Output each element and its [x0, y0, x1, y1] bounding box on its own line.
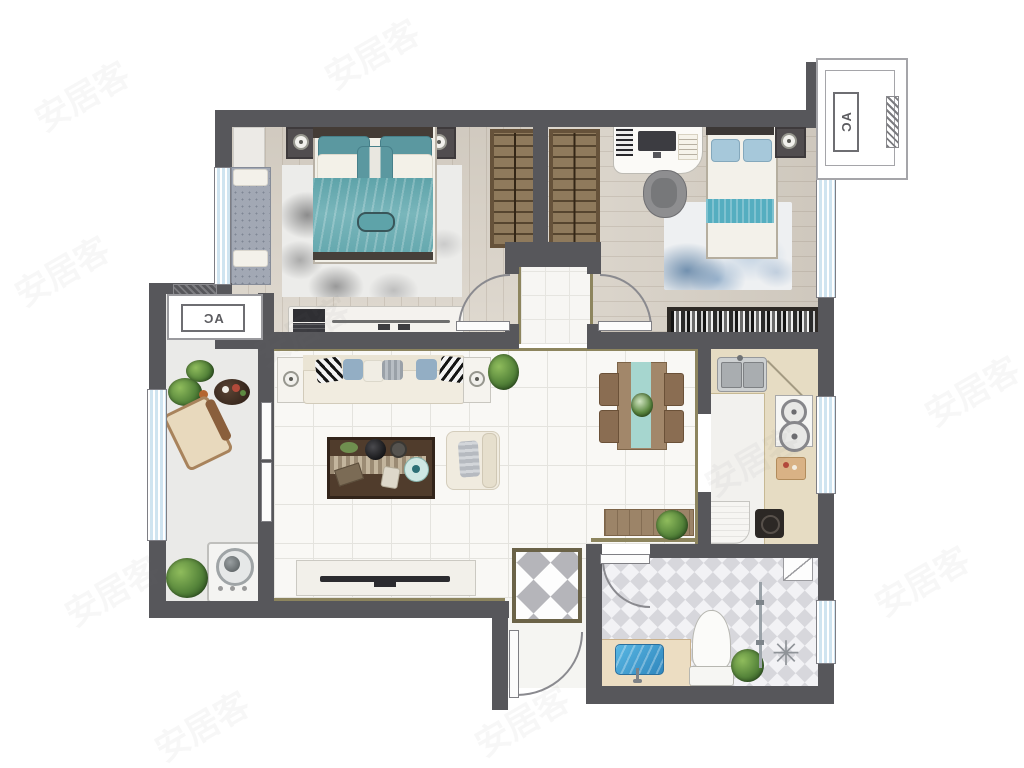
- cutting-board-dot: [783, 462, 789, 468]
- washer-knob: [230, 586, 235, 591]
- wall-bottom-main: [149, 601, 509, 618]
- watermark: 安居客: [25, 48, 138, 141]
- door-leaf-entry: [509, 630, 519, 698]
- dining-chair: [599, 410, 619, 443]
- watermark: 安居客: [315, 6, 428, 99]
- dresser-feet: [398, 324, 410, 330]
- ac-label-right-text: AC: [839, 112, 854, 133]
- shower-head-icon: ✳: [766, 634, 806, 674]
- window-master-bay: [214, 167, 231, 285]
- ac-label-right: AC: [833, 92, 859, 152]
- dresser-bar: [332, 320, 450, 323]
- wall-kitchen-left-a: [698, 349, 711, 414]
- shower-glass-partition: [759, 582, 762, 668]
- tv-stand: [374, 582, 396, 587]
- desk-papers: [678, 134, 698, 160]
- sofa-pillow-gray: [382, 360, 403, 380]
- single-bed-pillow-right: [743, 139, 772, 162]
- glass-hinge: [756, 640, 764, 645]
- wall-bath-left: [586, 544, 602, 704]
- table-lamp-icon: [283, 371, 299, 387]
- door-leaf-bathroom: [600, 554, 650, 564]
- bed-duvet-clasp: [357, 212, 395, 232]
- floor-plan: ✳: [0, 0, 1024, 768]
- sofa-pillow-blue-left: [343, 359, 363, 380]
- vanity-sink: [615, 644, 664, 675]
- wall-closet-divider: [533, 127, 548, 242]
- balcony-plant: [186, 360, 214, 382]
- sink-basin-right: [743, 362, 764, 388]
- door-leaf-master: [456, 321, 510, 331]
- laptop-icon: [293, 309, 325, 322]
- wall-top: [215, 110, 820, 127]
- wall-kitchen-left-b: [698, 492, 711, 545]
- greens-dish: [340, 442, 358, 453]
- entry-door-mat: [512, 548, 582, 623]
- dresser-feet: [378, 324, 390, 330]
- window-kitchen: [816, 396, 836, 494]
- sliding-door-leaf: [261, 402, 272, 460]
- wall-bedroom2-bottom: [601, 332, 834, 349]
- hallway-floor: [518, 267, 593, 344]
- burner-large: [779, 421, 810, 452]
- washer-knob: [242, 586, 247, 591]
- wall-entry-bay-left: [492, 618, 508, 710]
- wall-hall-right-a: [587, 242, 601, 274]
- bench-pillow-bottom: [233, 250, 268, 267]
- dining-centerpiece: [631, 393, 653, 417]
- appliance-ring: [761, 515, 780, 534]
- armchair-back: [482, 433, 497, 488]
- table-lamp-icon: [469, 371, 485, 387]
- ac-label-left-text: AC: [203, 311, 224, 326]
- single-bed-runner: [706, 199, 774, 223]
- monitor-stand: [653, 152, 661, 158]
- window-bedroom2: [816, 177, 836, 298]
- ac-label-left: AC: [181, 304, 245, 332]
- dining-border-segment: [591, 538, 698, 542]
- wall-right-b: [818, 296, 834, 396]
- dining-chair: [664, 410, 684, 443]
- ac-hatch-right: [886, 96, 899, 148]
- balcony-plant-bottom: [166, 558, 208, 598]
- bathroom-niche: [783, 556, 813, 581]
- spool: [380, 466, 400, 490]
- single-bed-pillow-left: [711, 139, 740, 162]
- washer-drum-inner: [224, 556, 240, 572]
- toilet-bowl: [692, 610, 731, 670]
- sofa-pillow-blue-right: [416, 359, 437, 380]
- toilet-tank: [689, 666, 734, 686]
- sofa-pillow-zebra-left: [314, 356, 343, 383]
- desk-stripe-mat: [616, 128, 633, 156]
- bed-foot-rail: [313, 252, 433, 260]
- sink-faucet-icon: [737, 355, 743, 361]
- sliding-door-leaf: [261, 462, 272, 522]
- sink-basin-left: [721, 362, 742, 388]
- vanity-faucet-base: [633, 679, 642, 683]
- watermark: 安居客: [145, 678, 258, 768]
- wall-balcony-left-a: [149, 283, 166, 389]
- wall-bath-bottom: [586, 686, 834, 704]
- desk-chair-seat: [651, 178, 677, 208]
- tea-bowl: [390, 441, 407, 458]
- window-balcony: [147, 389, 167, 541]
- sideboard-plant: [656, 510, 688, 540]
- master-marble-pad: [233, 127, 265, 169]
- sofa-pillow-white: [363, 360, 384, 382]
- armchair-pillow: [458, 440, 480, 477]
- watermark: 安居客: [5, 223, 118, 316]
- lamp-icon: [781, 133, 797, 149]
- dining-chair: [664, 373, 684, 406]
- wall-bath-top: [650, 544, 834, 558]
- plant-living-corner: [488, 354, 519, 390]
- watermark: 安居客: [915, 343, 1024, 436]
- tea-leaf: [240, 390, 246, 396]
- tea-cup-red: [232, 384, 240, 392]
- dining-chair: [599, 373, 619, 406]
- tea-cup: [222, 386, 229, 393]
- bench-pillow-top: [233, 169, 268, 186]
- washer-knob: [218, 586, 223, 591]
- teal-plate-center: [412, 465, 420, 473]
- door-leaf-bedroom2: [598, 321, 652, 331]
- cutting-board-dot: [792, 465, 797, 470]
- lamp-icon: [293, 134, 309, 150]
- wall-balcony-left-b: [149, 539, 166, 618]
- teapot-icon: [365, 439, 386, 460]
- glass-hinge: [756, 600, 764, 605]
- fridge: [705, 501, 750, 544]
- wardrobe-second-bedroom: [549, 129, 600, 248]
- watermark: 安居客: [865, 533, 978, 626]
- cutting-board: [776, 457, 806, 480]
- monitor-icon: [638, 131, 676, 151]
- window-bathroom: [816, 600, 836, 664]
- wall-left-upper: [215, 127, 232, 167]
